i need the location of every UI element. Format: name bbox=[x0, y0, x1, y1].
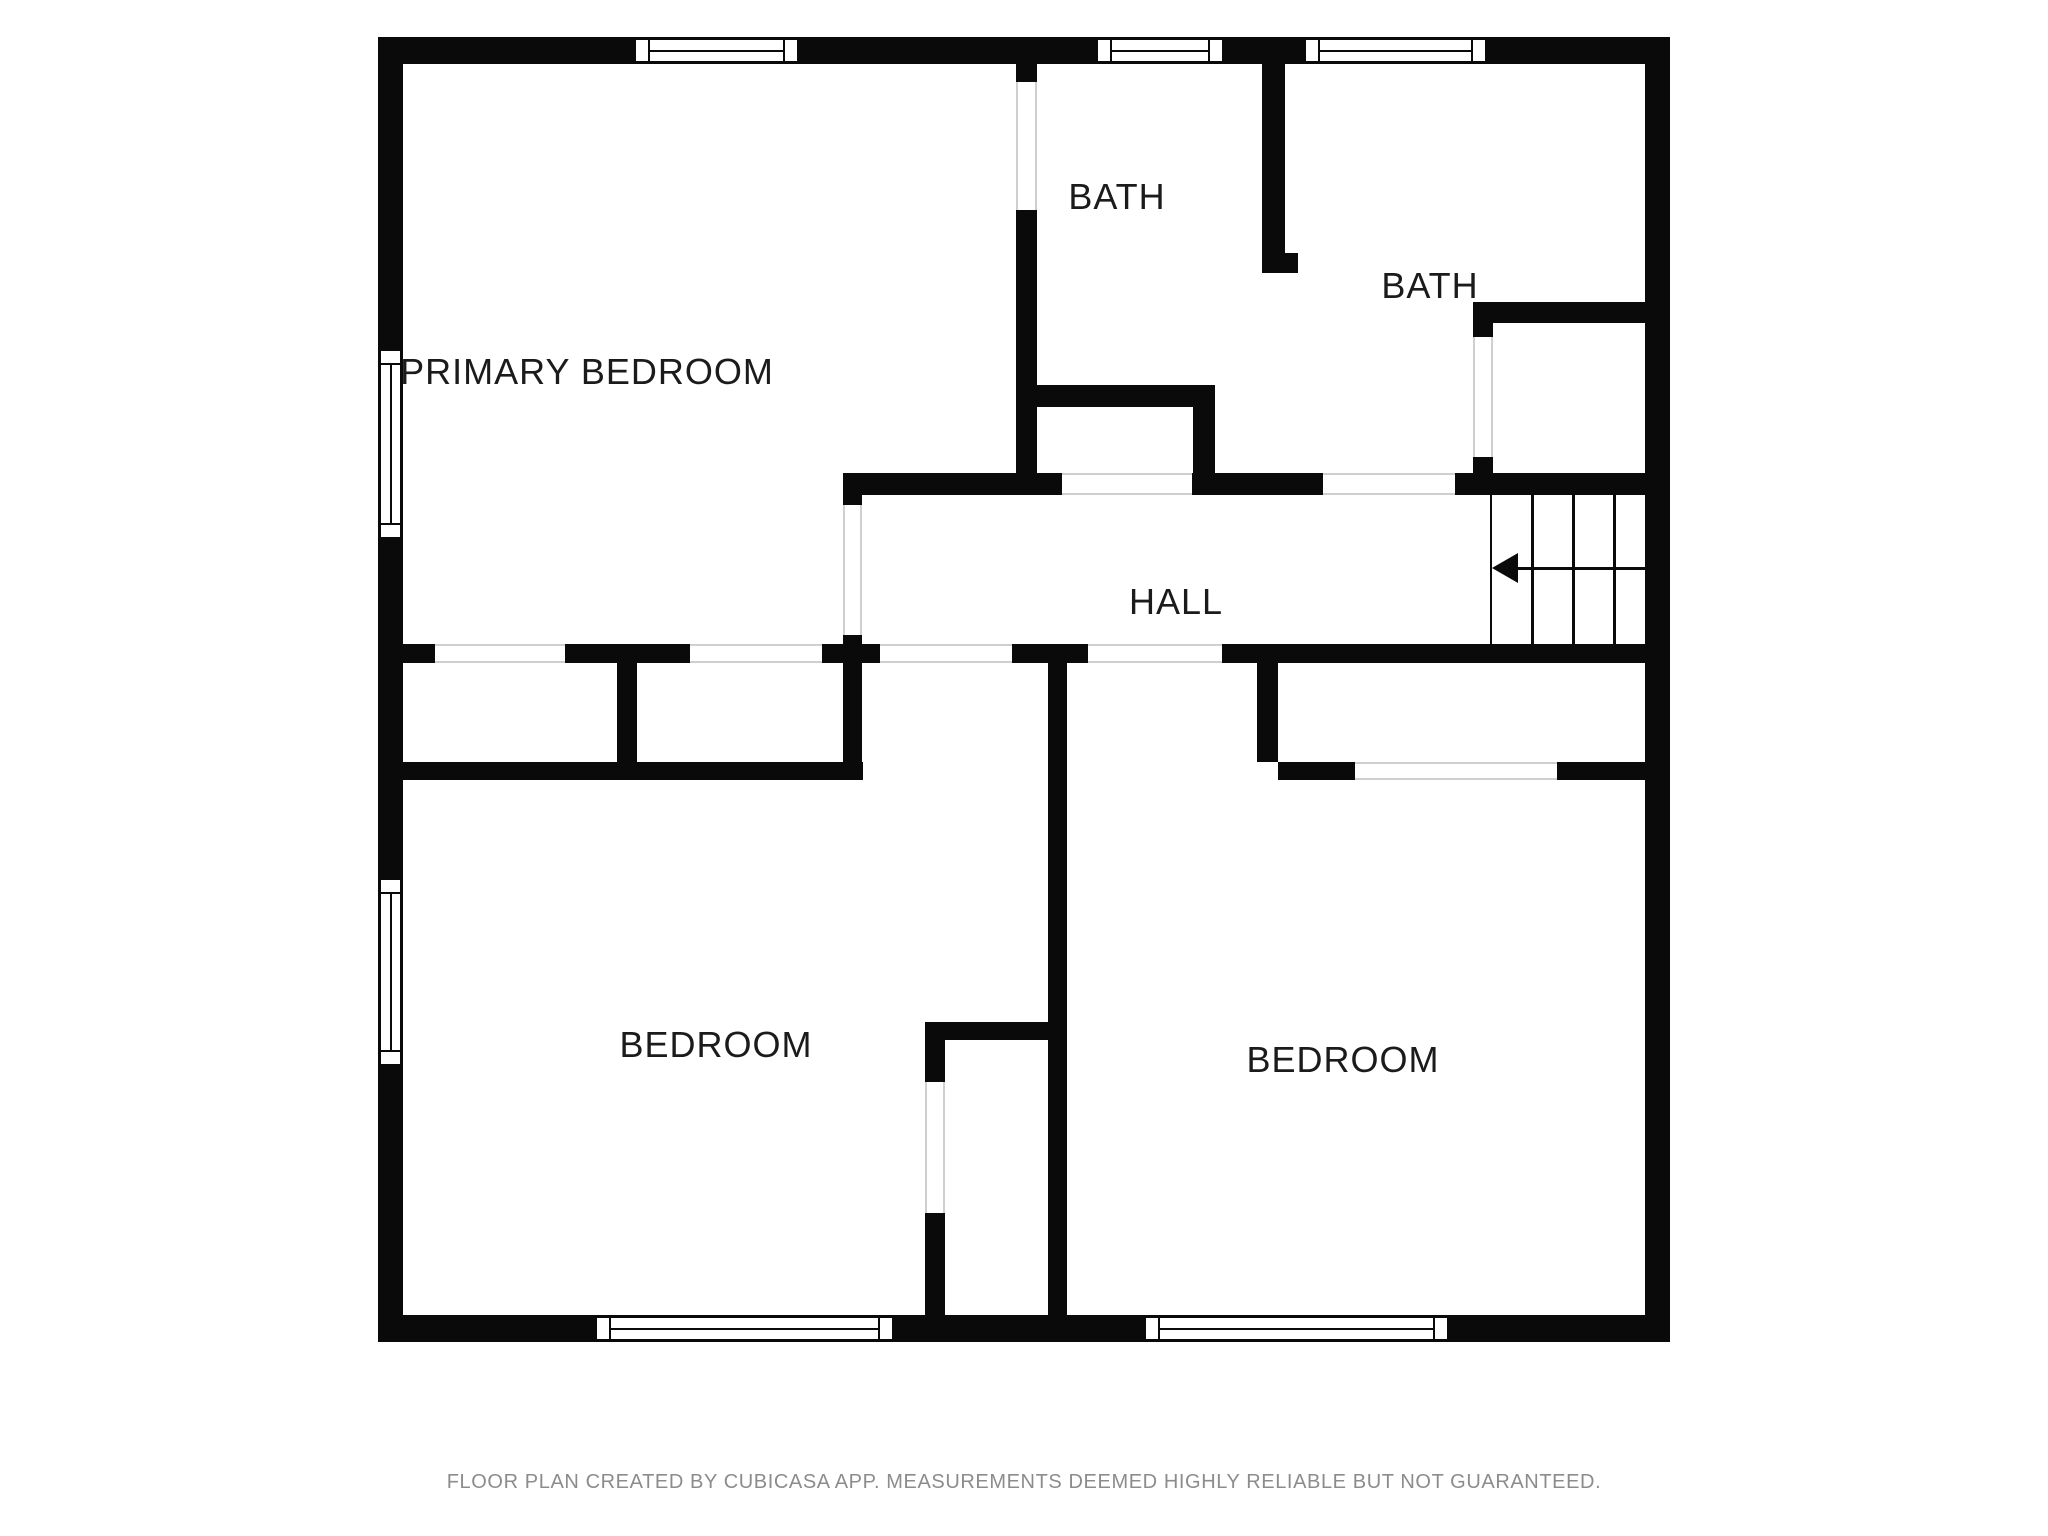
window-frame-line bbox=[609, 1328, 880, 1330]
wall bbox=[1012, 644, 1088, 663]
wall bbox=[800, 37, 1095, 64]
window-frame-line bbox=[1318, 50, 1473, 52]
wall bbox=[378, 37, 403, 348]
wall bbox=[1450, 1315, 1668, 1342]
door-opening bbox=[1062, 473, 1192, 495]
wall bbox=[403, 644, 435, 663]
wall bbox=[843, 473, 862, 505]
window-frame-line bbox=[878, 1318, 880, 1339]
wall bbox=[378, 1315, 594, 1342]
wall bbox=[1557, 762, 1645, 780]
wall bbox=[925, 1213, 945, 1317]
window-frame-line bbox=[1158, 1318, 1160, 1339]
wall bbox=[403, 762, 863, 780]
window bbox=[1095, 37, 1225, 64]
wall bbox=[378, 1067, 403, 1342]
wall bbox=[925, 1022, 945, 1082]
disclaimer-text: FLOOR PLAN CREATED BY CUBICASA APP. MEAS… bbox=[0, 1471, 2048, 1494]
wall bbox=[1016, 210, 1037, 477]
room-label-bedroom-left: BEDROOM bbox=[619, 1024, 812, 1066]
door-opening bbox=[1088, 644, 1222, 663]
stair-direction-line bbox=[1514, 567, 1645, 570]
room-label-bedroom-right: BEDROOM bbox=[1246, 1039, 1439, 1081]
door-opening bbox=[1473, 337, 1493, 457]
window bbox=[1303, 37, 1488, 64]
room-label-primary-bedroom: PRIMARY BEDROOM bbox=[400, 351, 774, 393]
window-frame-line bbox=[390, 892, 392, 1052]
wall bbox=[1473, 457, 1493, 473]
stair-direction-arrow-icon bbox=[1492, 553, 1518, 583]
window bbox=[633, 37, 800, 64]
wall bbox=[925, 1022, 1067, 1040]
wall bbox=[617, 663, 637, 762]
window-frame-line bbox=[1110, 40, 1112, 61]
wall bbox=[1473, 302, 1645, 323]
wall bbox=[378, 540, 403, 877]
wall bbox=[1048, 663, 1067, 1317]
window-frame-line bbox=[381, 363, 400, 365]
window-frame-line bbox=[1158, 1328, 1435, 1330]
wall bbox=[1473, 323, 1493, 337]
wall bbox=[1222, 644, 1645, 663]
door-opening bbox=[1323, 473, 1455, 495]
wall bbox=[822, 644, 880, 663]
window-frame-line bbox=[381, 1050, 400, 1052]
window bbox=[378, 877, 403, 1067]
wall bbox=[1016, 64, 1037, 82]
wall bbox=[1488, 37, 1670, 64]
window-frame-line bbox=[1471, 40, 1473, 61]
wall bbox=[1225, 37, 1303, 64]
window-frame-line bbox=[1433, 1318, 1435, 1339]
door-opening bbox=[880, 644, 1012, 663]
wall bbox=[1262, 64, 1285, 273]
room-label-bath-1: BATH bbox=[1068, 176, 1165, 218]
wall bbox=[565, 644, 690, 663]
window-frame-line bbox=[648, 50, 785, 52]
window-frame-line bbox=[1208, 40, 1210, 61]
room-label-hall: HALL bbox=[1129, 581, 1223, 623]
door-opening bbox=[690, 644, 822, 663]
window-frame-line bbox=[390, 363, 392, 525]
window-frame-line bbox=[783, 40, 785, 61]
window-frame-line bbox=[609, 1318, 611, 1339]
window-frame-line bbox=[1110, 50, 1210, 52]
window-frame-line bbox=[648, 40, 650, 61]
door-opening bbox=[843, 505, 862, 635]
wall bbox=[843, 473, 1062, 495]
window bbox=[594, 1315, 895, 1342]
wall bbox=[1035, 385, 1215, 407]
wall bbox=[895, 1315, 1143, 1342]
wall bbox=[1192, 473, 1323, 495]
window-frame-line bbox=[1318, 40, 1320, 61]
wall bbox=[1193, 407, 1215, 475]
door-opening bbox=[435, 644, 565, 663]
wall bbox=[1262, 253, 1298, 273]
wall bbox=[1278, 762, 1355, 780]
window-frame-line bbox=[381, 892, 400, 894]
window bbox=[1143, 1315, 1450, 1342]
room-label-bath-2: BATH bbox=[1381, 265, 1478, 307]
wall bbox=[1257, 663, 1278, 762]
door-opening bbox=[925, 1082, 945, 1213]
wall bbox=[1645, 37, 1670, 1342]
wall bbox=[378, 37, 633, 64]
window-frame-line bbox=[381, 523, 400, 525]
floor-plan: PRIMARY BEDROOMBATHBATHHALLBEDROOMBEDROO… bbox=[0, 0, 2048, 1536]
door-opening bbox=[1355, 762, 1557, 780]
door-opening bbox=[1016, 82, 1037, 210]
wall bbox=[1455, 473, 1645, 495]
